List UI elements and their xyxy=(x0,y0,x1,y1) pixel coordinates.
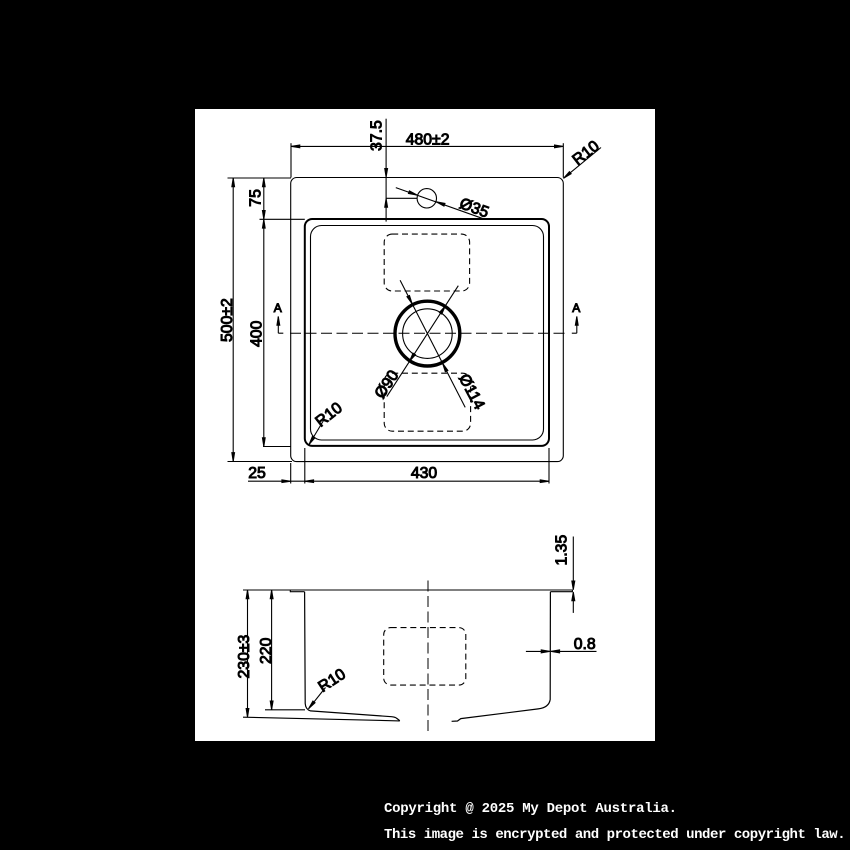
svg-text:A: A xyxy=(274,301,282,315)
svg-text:480±2: 480±2 xyxy=(406,131,450,148)
svg-text:R10: R10 xyxy=(569,138,602,169)
svg-text:430: 430 xyxy=(411,465,438,482)
svg-text:0.8: 0.8 xyxy=(574,636,596,653)
svg-text:Ø114: Ø114 xyxy=(455,371,488,412)
svg-text:Ø35: Ø35 xyxy=(457,195,491,221)
svg-text:25: 25 xyxy=(248,465,266,482)
svg-text:500±2: 500±2 xyxy=(219,298,236,342)
svg-text:R10: R10 xyxy=(315,666,349,696)
svg-text:1.35: 1.35 xyxy=(554,535,571,566)
svg-text:400: 400 xyxy=(249,320,266,347)
svg-text:A: A xyxy=(572,301,580,315)
svg-text:220: 220 xyxy=(258,637,275,664)
svg-text:37.5: 37.5 xyxy=(369,120,386,151)
svg-text:R10: R10 xyxy=(312,399,345,430)
svg-text:230±3: 230±3 xyxy=(236,634,253,678)
svg-text:Ø90: Ø90 xyxy=(372,367,403,401)
svg-text:75: 75 xyxy=(248,189,265,207)
